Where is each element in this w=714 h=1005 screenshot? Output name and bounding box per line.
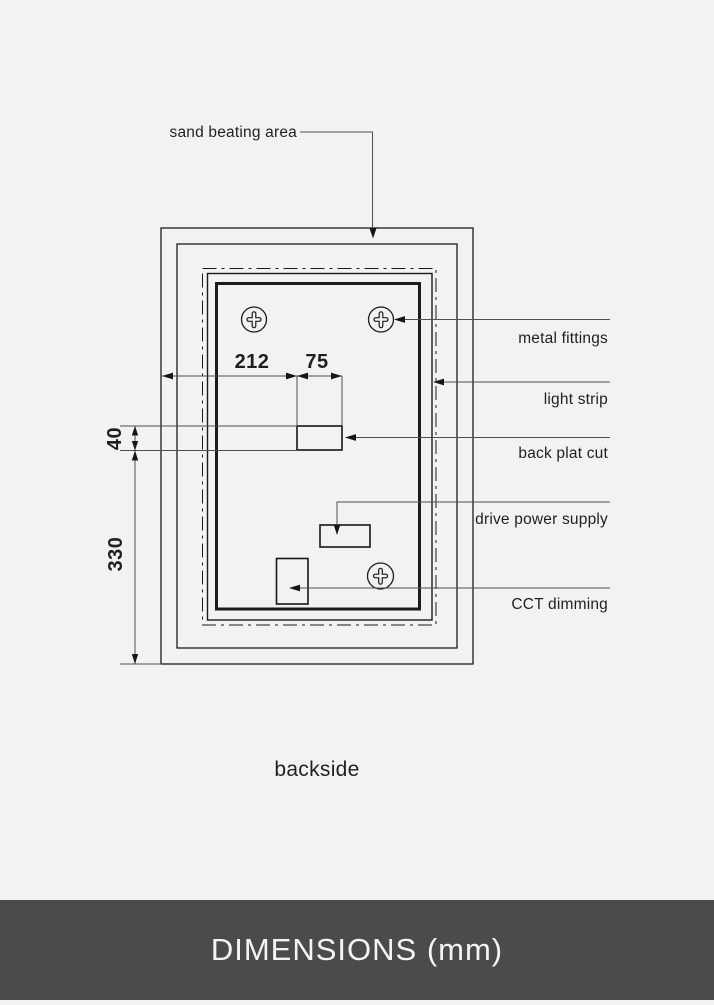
screw-circle — [368, 563, 394, 589]
dim-text-40: 40 — [104, 427, 126, 450]
page: { "colors": { "background": "#f2f2f0", "… — [0, 0, 714, 1000]
dim-text-330: 330 — [105, 537, 127, 572]
label-drive-power-supply: drive power supply — [475, 511, 608, 528]
label-sand-beating-area: sand beating area — [170, 124, 298, 141]
metal-fitting-top-left — [242, 307, 267, 332]
dimension-212-75 — [162, 373, 342, 426]
metal-fitting-bottom-right — [368, 563, 394, 589]
label-metal-fittings: metal fittings — [518, 330, 608, 347]
caption-backside: backside — [274, 758, 359, 781]
arrow-left-icon — [433, 379, 444, 386]
drive-power-supply-box — [320, 525, 370, 547]
sand-beating-leader — [300, 132, 377, 239]
label-cct-dimming: CCT dimming — [511, 596, 608, 613]
back-plat-cut-leader — [345, 434, 610, 441]
metal-fittings-leader — [394, 316, 610, 323]
label-back-plat-cut: back plat cut — [518, 445, 608, 462]
arrow-left-icon — [394, 316, 405, 323]
cct-dimming-box — [277, 559, 309, 605]
light-strip-leader — [433, 379, 610, 386]
dim-text-75: 75 — [305, 351, 328, 373]
label-light-strip: light strip — [544, 391, 608, 408]
arrow-left-icon — [345, 434, 356, 441]
metal-fitting-top-right — [369, 307, 394, 332]
dim-text-212: 212 — [235, 351, 270, 373]
back-plat-cut-box — [297, 426, 342, 450]
technical-drawing: sand beating area metal fittings light s… — [0, 0, 714, 1000]
dimension-40 — [120, 426, 297, 451]
footer-title: DIMENSIONS (mm) — [211, 932, 503, 968]
footer-bar: DIMENSIONS (mm) — [0, 900, 714, 1000]
drawing-stage: sand beating area metal fittings light s… — [0, 0, 714, 1000]
cct-dimming-leader — [289, 585, 610, 592]
arrow-down-icon — [369, 228, 376, 239]
